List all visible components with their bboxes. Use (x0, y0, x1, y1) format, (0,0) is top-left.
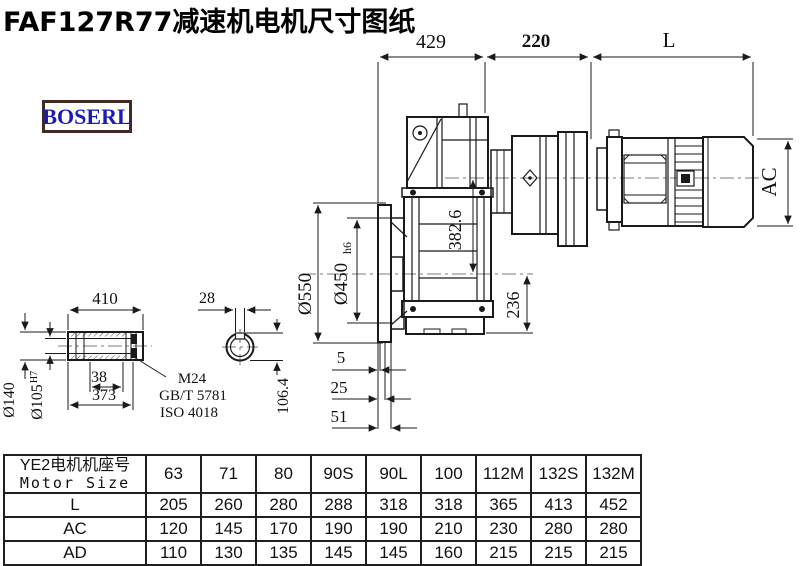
table-cell: 135 (256, 541, 311, 565)
table-cell: 280 (256, 493, 311, 517)
table-header-cell: 132M (586, 455, 641, 493)
dim-373: 373 (92, 387, 116, 404)
motor-size-table: YE2电机机座号 Motor Size 63 71 80 90S 90L 100… (3, 454, 642, 566)
table-header-cell: 112M (476, 455, 531, 493)
table-cell: 365 (476, 493, 531, 517)
table-cell: 170 (256, 517, 311, 541)
table-header-row: YE2电机机座号 Motor Size 63 71 80 90S 90L 100… (4, 455, 641, 493)
table-cell: 110 (146, 541, 201, 565)
table-cell: 215 (586, 541, 641, 565)
motor (597, 130, 753, 230)
table-cell: 205 (146, 493, 201, 517)
table-header-cell: 63 (146, 455, 201, 493)
motor-size-label-cn: YE2电机机座号 (5, 457, 145, 475)
row-label: AD (4, 541, 146, 565)
fan-cowl (703, 137, 753, 227)
row-label: L (4, 493, 146, 517)
dim-236: 236 (503, 292, 523, 319)
dim-dia105-tolerance: H7 (29, 371, 40, 383)
dimension-drawing: 429 220 L AC Ø550 Ø450 h6 382.6 236 5 25… (0, 0, 800, 455)
table-header-cell: 132S (531, 455, 586, 493)
leader-line (134, 357, 166, 377)
dim-429: 429 (416, 31, 446, 53)
table-cell: 318 (366, 493, 421, 517)
table-header-cell: 90L (366, 455, 421, 493)
table-cell: 130 (201, 541, 256, 565)
dim-38: 38 (91, 369, 107, 386)
center-lines (58, 178, 760, 365)
table-row-AC: AC 120 145 170 190 190 210 230 280 280 (4, 517, 641, 541)
dim-ac: AC (757, 167, 781, 196)
table-cell: 215 (476, 541, 531, 565)
table-cell: 452 (586, 493, 641, 517)
note-iso-4018: ISO 4018 (160, 405, 218, 421)
dim-dia450: Ø450 (331, 263, 352, 305)
hollow-shaft-detail (68, 332, 166, 377)
table-cell: 280 (531, 517, 586, 541)
table-cell: 280 (586, 517, 641, 541)
dim-220: 220 (522, 31, 551, 52)
note-m24: M24 (178, 371, 207, 387)
note-gbt-5781: GB/T 5781 (159, 388, 227, 404)
motor-size-label-en: Motor Size (5, 475, 145, 491)
table-cell: 145 (311, 541, 366, 565)
table-header-motor-size: YE2电机机座号 Motor Size (4, 455, 146, 493)
table-cell: 145 (366, 541, 421, 565)
table-row-AD: AD 110 130 135 145 145 160 215 215 215 (4, 541, 641, 565)
dim-25: 25 (331, 378, 348, 397)
table-cell: 288 (311, 493, 366, 517)
table-cell: 260 (201, 493, 256, 517)
table-cell: 413 (531, 493, 586, 517)
table-cell: 230 (476, 517, 531, 541)
dim-106-4: 106.4 (275, 378, 292, 414)
table-cell: 190 (366, 517, 421, 541)
table-header-cell: 100 (421, 455, 476, 493)
row-label: AC (4, 517, 146, 541)
table-cell: 210 (421, 517, 476, 541)
table-header-cell: 80 (256, 455, 311, 493)
dim-5: 5 (337, 348, 346, 367)
table-header-cell: 90S (311, 455, 366, 493)
table-header-cell: 71 (201, 455, 256, 493)
dim-dia450-tolerance: h6 (340, 242, 354, 254)
shaft-cross-section (227, 308, 254, 361)
keyway (236, 333, 245, 339)
dim-dia550: Ø550 (295, 273, 316, 315)
table-cell: 215 (531, 541, 586, 565)
dim-dia140: Ø140 (1, 382, 18, 418)
dim-410: 410 (92, 289, 118, 308)
dim-L: L (663, 28, 676, 52)
dim-28: 28 (199, 290, 215, 307)
dim-51: 51 (331, 407, 348, 426)
table-cell: 145 (201, 517, 256, 541)
dim-382-6: 382.6 (445, 210, 465, 251)
table-cell: 120 (146, 517, 201, 541)
table-cell: 190 (311, 517, 366, 541)
table-cell: 160 (421, 541, 476, 565)
table-cell: 318 (421, 493, 476, 517)
r-stage-adapter (491, 132, 587, 246)
dim-dia105: Ø105 (29, 384, 46, 420)
table-row-L: L 205 260 280 288 318 318 365 413 452 (4, 493, 641, 517)
